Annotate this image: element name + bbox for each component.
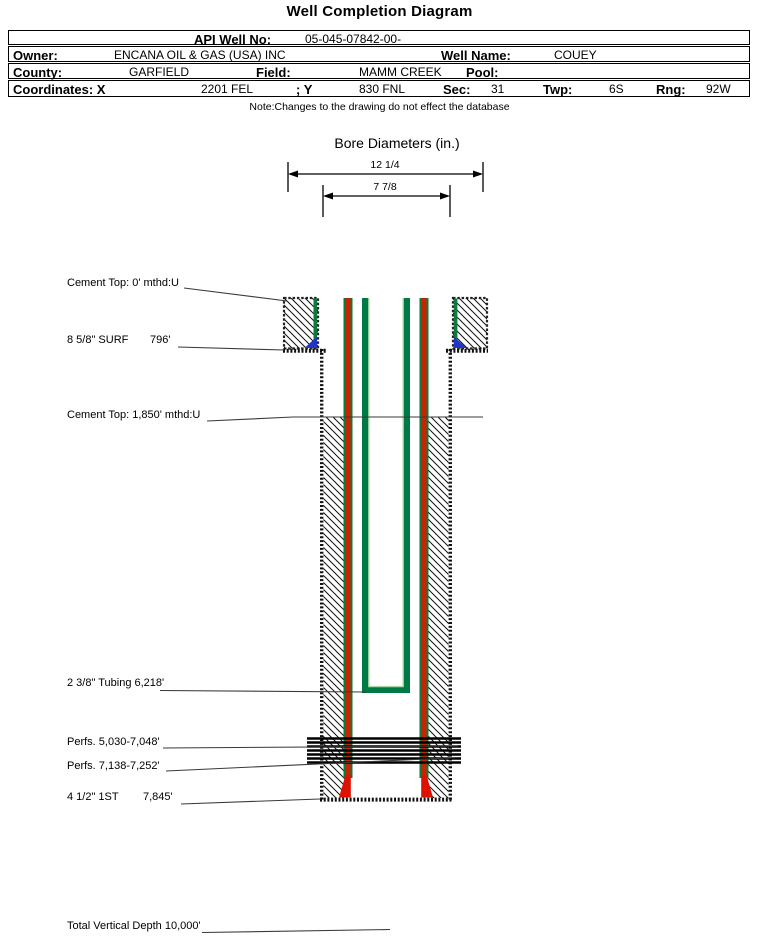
casing-left-inner-green [351, 298, 353, 778]
leader-surface-casing [178, 347, 284, 350]
coordinate-x-value: 2201 FEL [201, 82, 253, 96]
api-well-no-label: API Well No: [194, 32, 271, 47]
well-name-label: Well Name: [441, 48, 511, 63]
rng-value: 92W [706, 82, 731, 96]
leader-production-casing [181, 799, 320, 804]
coordinate-y-value: 830 FNL [359, 82, 405, 96]
page-title: Well Completion Diagram [0, 3, 759, 20]
field-label: Field: [256, 65, 291, 80]
production-casing-label: 4 1/2" 1ST [67, 791, 119, 803]
bore-diameter-outer-value: 12 1/4 [370, 159, 399, 171]
twp-value: 6S [609, 82, 624, 96]
twp-label: Twp: [543, 82, 572, 97]
owner-label: Owner: [13, 48, 58, 63]
well-name-value: COUEY [554, 48, 597, 62]
surface-casing-depth: 796' [150, 334, 170, 346]
bore-diameter-inner-value: 7 7/8 [373, 181, 397, 193]
leader-cement-top-surface [184, 288, 287, 301]
owner-value: ENCANA OIL & GAS (USA) INC [114, 48, 286, 62]
surface-casing-label: 8 5/8" SURF [67, 334, 129, 346]
cement-top-surface-label: Cement Top: 0' mthd:U [67, 277, 179, 289]
pool-label: Pool: [466, 65, 499, 80]
casing-right-outer-green [427, 298, 429, 778]
table-row-api: API Well No: 05-045-07842-00- [8, 30, 750, 45]
table-row-coordinates: Coordinates: X 2201 FEL ; Y 830 FNL Sec:… [8, 80, 750, 97]
casing-left-outer-green [344, 298, 346, 778]
cement-top-production-label: Cement Top: 1,850' mthd:U [67, 409, 200, 421]
county-label: County: [13, 65, 62, 80]
production-cement-left [324, 417, 345, 798]
inner-dim-arrowhead-left [323, 193, 333, 200]
production-casing-right [420, 298, 429, 778]
coordinate-y-label: ; Y [296, 82, 312, 97]
rng-label: Rng: [656, 82, 686, 97]
production-casing-depth: 7,845' [143, 791, 173, 803]
total-vertical-depth-label: Total Vertical Depth 10,000' [67, 920, 201, 932]
database-note: Note:Changes to the drawing do not effec… [0, 101, 759, 113]
table-row-owner: Owner: ENCANA OIL & GAS (USA) INC Well N… [8, 46, 750, 62]
bore-diameters: Bore Diameters (in.) 12 1/4 7 7/8 [288, 135, 483, 217]
sec-label: Sec: [443, 82, 470, 97]
field-value: MAMM CREEK [359, 65, 442, 79]
bore-diameters-title: Bore Diameters (in.) [334, 135, 459, 151]
county-value: GARFIELD [129, 65, 189, 79]
perfs-lower-label: Perfs. 7,138-7,252' [67, 760, 160, 772]
coordinates-label: Coordinates: X [13, 82, 105, 97]
surface-casing-section [283, 298, 488, 351]
table-row-county: County: GARFIELD Field: MAMM CREEK Pool: [8, 63, 750, 79]
tubing-string [366, 298, 407, 690]
well-schematic: Bore Diameters (in.) 12 1/4 7 7/8 [0, 120, 759, 943]
outer-dim-arrowhead-right [473, 171, 483, 178]
perfs-upper-label: Perfs. 5,030-7,048' [67, 736, 160, 748]
well-completion-diagram-page: Well Completion Diagram API Well No: 05-… [0, 0, 759, 943]
production-cement-right [428, 417, 449, 798]
leader-total-depth [202, 930, 390, 933]
tubing-label: 2 3/8" Tubing 6,218' [67, 677, 164, 689]
inner-dim-arrowhead-right [440, 193, 450, 200]
casing-left-red [346, 298, 351, 778]
casing-right-inner-green [420, 298, 422, 778]
tubing-highlight [369, 298, 403, 687]
production-casing-left [344, 298, 353, 778]
sec-value: 31 [491, 82, 504, 96]
api-well-no-value: 05-045-07842-00- [305, 32, 401, 46]
outer-dim-arrowhead-left [288, 171, 298, 178]
casing-right-red [422, 298, 427, 778]
